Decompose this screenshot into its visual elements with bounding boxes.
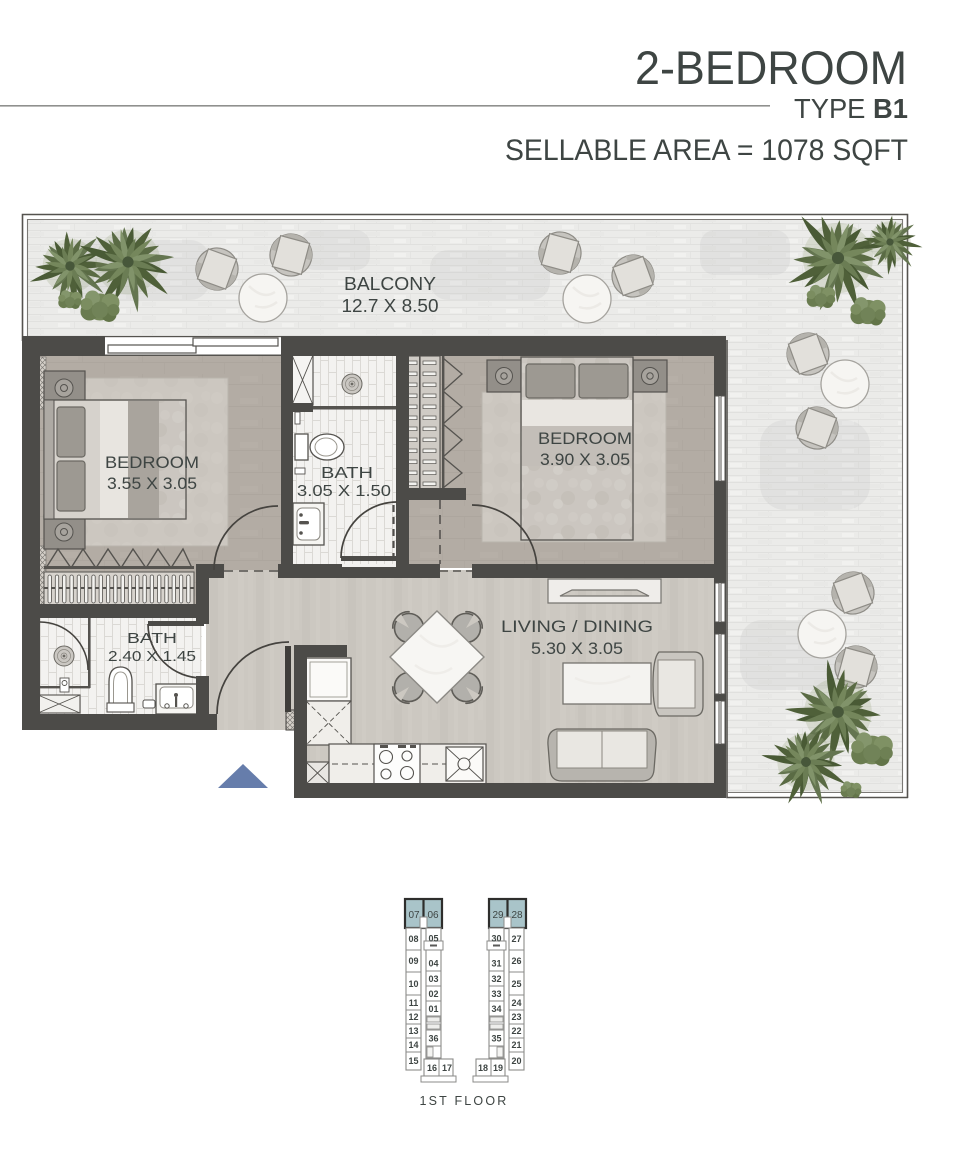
- svg-text:02: 02: [428, 989, 438, 999]
- svg-text:08: 08: [408, 934, 418, 944]
- svg-text:31: 31: [491, 959, 501, 969]
- svg-text:34: 34: [491, 1004, 501, 1014]
- svg-text:30: 30: [491, 934, 501, 944]
- svg-text:SELLABLE AREA = 1078 SQFT: SELLABLE AREA = 1078 SQFT: [505, 134, 908, 167]
- svg-text:12: 12: [408, 1012, 418, 1022]
- svg-text:09: 09: [408, 956, 418, 966]
- svg-text:BATH: BATH: [321, 465, 373, 482]
- svg-text:BALCONY: BALCONY: [344, 274, 436, 294]
- svg-text:18: 18: [478, 1063, 488, 1073]
- svg-text:26: 26: [511, 956, 521, 966]
- svg-text:33: 33: [491, 989, 501, 999]
- svg-text:36: 36: [428, 1034, 438, 1044]
- svg-text:16: 16: [427, 1063, 437, 1073]
- svg-text:BEDROOM: BEDROOM: [538, 429, 632, 448]
- svg-text:5.30 X 3.05: 5.30 X 3.05: [531, 639, 623, 658]
- svg-text:2-BEDROOM: 2-BEDROOM: [635, 41, 907, 94]
- svg-text:32: 32: [491, 974, 501, 984]
- svg-text:3.90 X 3.05: 3.90 X 3.05: [540, 450, 630, 469]
- svg-text:BEDROOM: BEDROOM: [105, 453, 199, 472]
- svg-text:10: 10: [408, 979, 418, 989]
- svg-text:15: 15: [408, 1056, 418, 1066]
- svg-text:03: 03: [428, 974, 438, 984]
- svg-text:07: 07: [408, 910, 420, 921]
- svg-text:06: 06: [427, 910, 439, 921]
- svg-text:05: 05: [428, 934, 438, 944]
- svg-text:17: 17: [442, 1063, 452, 1073]
- svg-text:19: 19: [493, 1063, 503, 1073]
- svg-text:01: 01: [428, 1004, 438, 1014]
- svg-text:13: 13: [408, 1026, 418, 1036]
- svg-text:3.55 X 3.05: 3.55 X 3.05: [107, 474, 197, 493]
- svg-text:1ST FLOOR: 1ST FLOOR: [419, 1094, 508, 1108]
- svg-text:2.40 X 1.45: 2.40 X 1.45: [108, 648, 196, 665]
- svg-text:12.7 X 8.50: 12.7 X 8.50: [342, 296, 439, 316]
- svg-text:29: 29: [492, 910, 504, 921]
- svg-text:04: 04: [428, 959, 438, 969]
- svg-text:LIVING / DINING: LIVING / DINING: [501, 617, 653, 636]
- svg-text:20: 20: [511, 1056, 521, 1066]
- svg-text:21: 21: [511, 1040, 521, 1050]
- svg-text:23: 23: [511, 1012, 521, 1022]
- svg-text:24: 24: [511, 998, 521, 1008]
- svg-text:35: 35: [491, 1034, 501, 1044]
- svg-text:27: 27: [511, 934, 521, 944]
- svg-text:3.05 X 1.50: 3.05 X 1.50: [297, 483, 391, 500]
- svg-text:25: 25: [511, 979, 521, 989]
- svg-text:TYPE B1: TYPE B1: [794, 93, 908, 124]
- svg-text:14: 14: [408, 1040, 418, 1050]
- svg-text:11: 11: [409, 998, 419, 1008]
- svg-text:28: 28: [511, 910, 523, 921]
- svg-text:22: 22: [511, 1026, 521, 1036]
